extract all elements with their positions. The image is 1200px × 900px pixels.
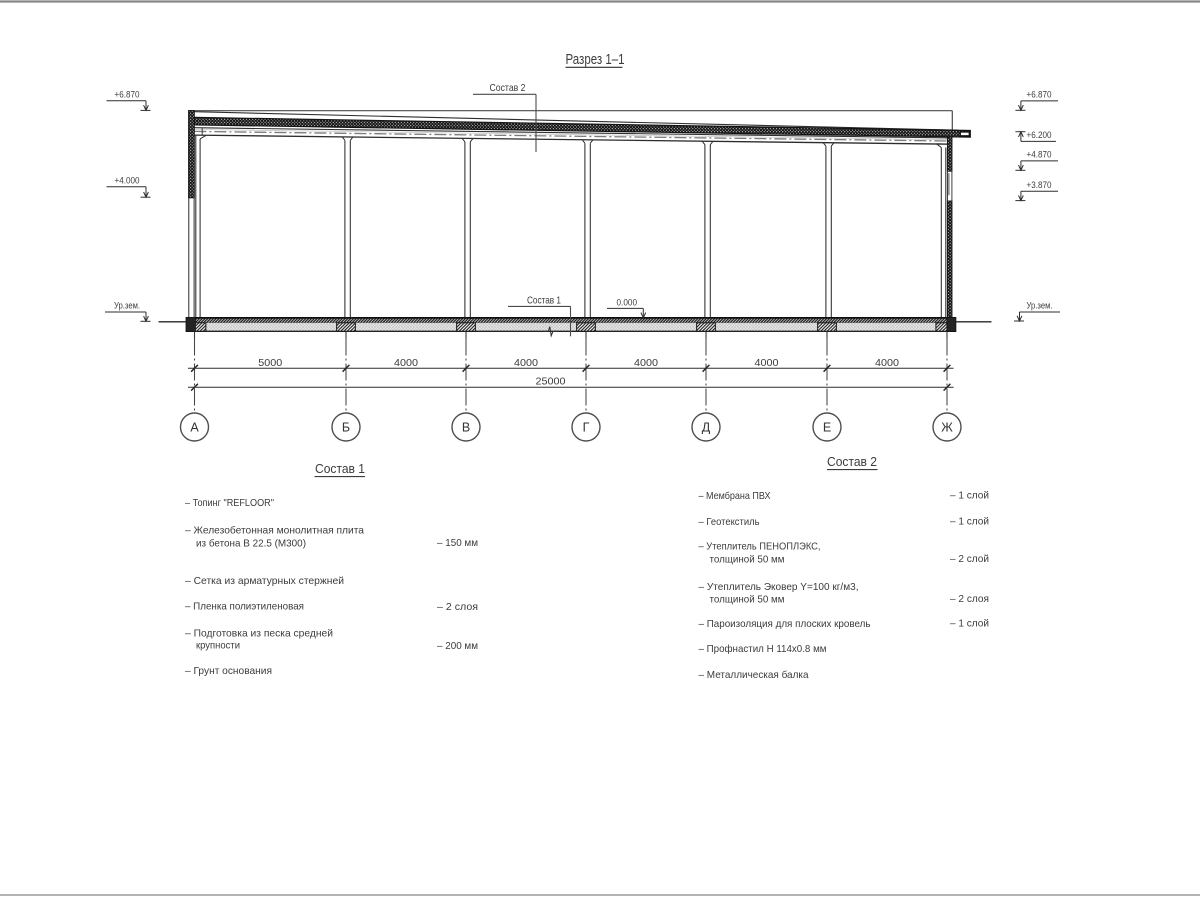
svg-text:– 200 мм: – 200 мм xyxy=(437,641,478,652)
svg-text:толщиной 50 мм: толщиной 50 мм xyxy=(710,595,785,606)
svg-text:крупности: крупности xyxy=(196,641,240,652)
svg-text:– 2 слой: – 2 слой xyxy=(950,554,989,565)
svg-text:4000: 4000 xyxy=(755,358,779,369)
svg-text:Состав 1: Состав 1 xyxy=(315,462,365,476)
svg-text:– Железобетонная монолитная п: – Железобетонная монолитная плита xyxy=(185,525,364,537)
svg-text:4000: 4000 xyxy=(514,358,538,369)
svg-text:– Мембрана ПВХ: – Мембрана ПВХ xyxy=(699,490,771,502)
svg-text:+4.000: +4.000 xyxy=(115,175,140,186)
svg-text:+6.870: +6.870 xyxy=(115,88,140,99)
svg-text:25000: 25000 xyxy=(536,377,566,388)
svg-text:– Металлическая балка: – Металлическая балка xyxy=(699,669,809,681)
svg-text:4000: 4000 xyxy=(394,358,418,369)
svg-text:+3.870: +3.870 xyxy=(1027,179,1052,190)
svg-text:Ж: Ж xyxy=(941,421,953,435)
svg-text:+6.870: +6.870 xyxy=(1027,88,1052,99)
svg-text:А: А xyxy=(190,421,199,435)
svg-text:+6.200: +6.200 xyxy=(1027,129,1052,140)
svg-text:толщиной 50 мм: толщиной 50 мм xyxy=(710,555,785,566)
svg-text:5000: 5000 xyxy=(258,358,282,369)
svg-text:Состав 2: Состав 2 xyxy=(827,455,877,469)
svg-text:– 2 слоя: – 2 слоя xyxy=(950,594,989,605)
svg-text:– 1 слой: – 1 слой xyxy=(950,619,989,630)
svg-text:Ур.зем.: Ур.зем. xyxy=(1027,299,1053,310)
svg-text:Состав 1: Состав 1 xyxy=(527,296,561,307)
svg-text:Б: Б xyxy=(342,421,350,435)
svg-text:Е: Е xyxy=(823,421,831,435)
svg-text:Состав 2: Состав 2 xyxy=(490,83,526,94)
svg-text:– 1 слой: – 1 слой xyxy=(950,491,989,502)
svg-text:Д: Д xyxy=(702,421,711,435)
svg-text:– 2 слоя: – 2 слоя xyxy=(437,602,478,613)
svg-text:0.000: 0.000 xyxy=(617,297,638,308)
svg-text:– Утеплитель ПЕНОПЛЭКС,: – Утеплитель ПЕНОПЛЭКС, xyxy=(699,542,821,553)
svg-text:– Профнастил Н 114х0.8 мм: – Профнастил Н 114х0.8 мм xyxy=(699,643,827,655)
svg-text:– 150 мм: – 150 мм xyxy=(437,538,478,549)
svg-text:– Утеплитель Эковер Y=100 кг/м: – Утеплитель Эковер Y=100 кг/м3, xyxy=(699,582,859,593)
svg-text:Г: Г xyxy=(583,421,590,435)
svg-text:из бетона В 22.5 (М300): из бетона В 22.5 (М300) xyxy=(196,538,306,550)
svg-text:– Топинг "REFLOOR": – Топинг "REFLOOR" xyxy=(185,498,274,509)
svg-text:4000: 4000 xyxy=(875,358,899,369)
svg-text:– Подготовка из песка средней: – Подготовка из песка средней xyxy=(185,629,333,640)
svg-text:– Грунт основания: – Грунт основания xyxy=(185,666,272,677)
svg-text:В: В xyxy=(462,421,470,435)
svg-text:– Геотекстиль: – Геотекстиль xyxy=(699,517,760,528)
svg-text:– Пленка полиэтиленовая: – Пленка полиэтиленовая xyxy=(185,602,304,613)
svg-text:– Пароизоляция для плоских кро: – Пароизоляция для плоских кровель xyxy=(699,619,871,630)
svg-text:Разрез 1–1: Разрез 1–1 xyxy=(566,52,625,68)
svg-text:+4.870: +4.870 xyxy=(1027,148,1052,159)
svg-text:4000: 4000 xyxy=(634,358,658,369)
svg-text:Ур.зем.: Ур.зем. xyxy=(114,299,140,310)
svg-text:– Сетка из арматурных стержней: – Сетка из арматурных стержней xyxy=(185,576,344,587)
svg-text:– 1 слой: – 1 слой xyxy=(950,517,989,528)
